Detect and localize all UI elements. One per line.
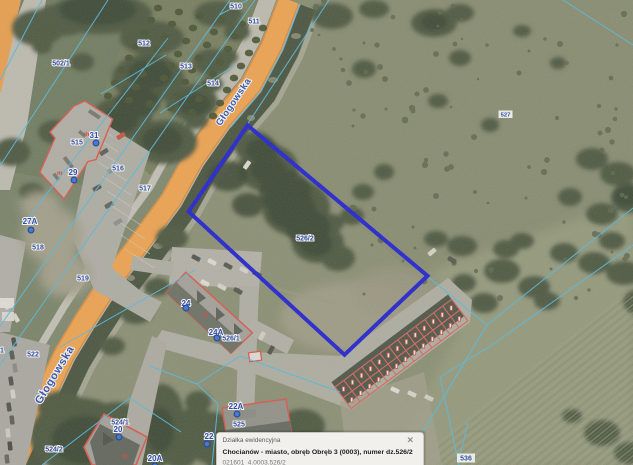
svg-text:Chocianów - miasto, obręb Obrę: Chocianów - miasto, obręb Obręb 3 (0003)… <box>223 449 413 456</box>
svg-text:Działka ewidencyjna: Działka ewidencyjna <box>223 437 281 444</box>
svg-text:021601_4.0003.526/2: 021601_4.0003.526/2 <box>223 460 287 465</box>
